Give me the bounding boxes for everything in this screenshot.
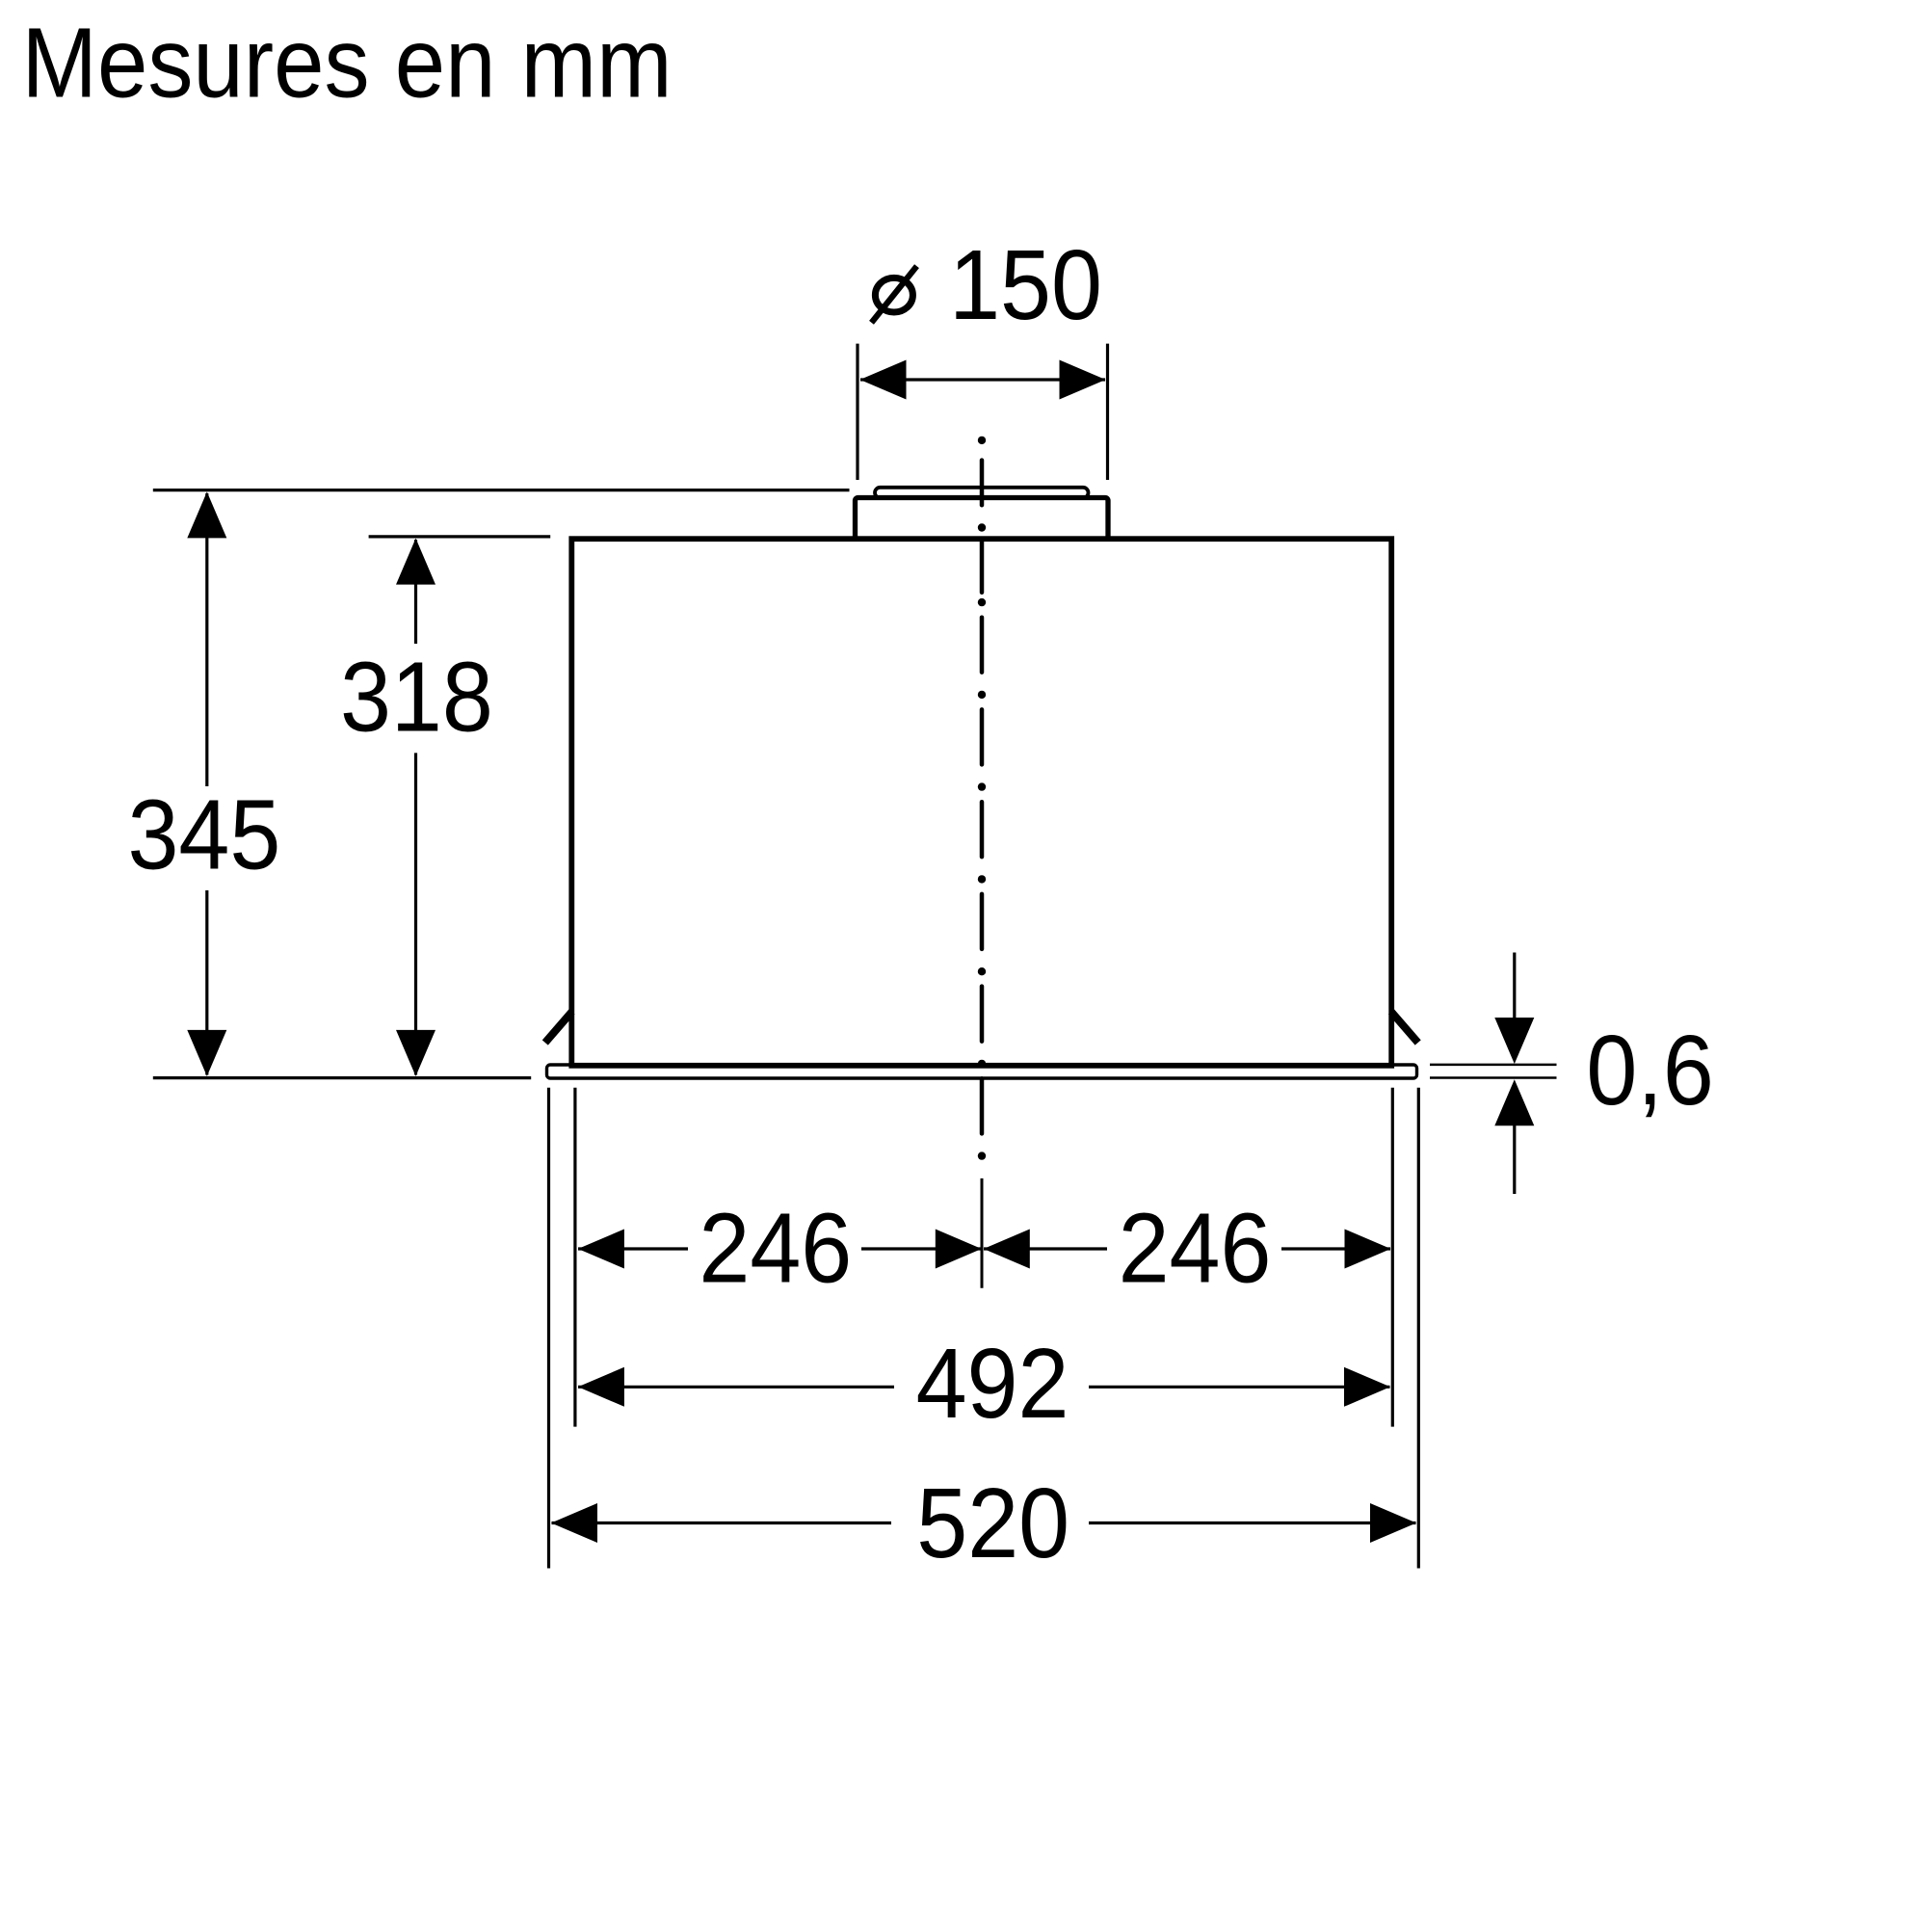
svg-text:0,6: 0,6 xyxy=(1586,1015,1713,1126)
svg-text:150: 150 xyxy=(949,229,1102,341)
svg-text:Mesures en mm: Mesures en mm xyxy=(22,6,673,118)
svg-text:520: 520 xyxy=(916,1468,1069,1579)
svg-text:345: 345 xyxy=(127,780,280,891)
svg-text:318: 318 xyxy=(340,642,493,754)
svg-text:492: 492 xyxy=(916,1328,1069,1440)
svg-text:246: 246 xyxy=(1119,1193,1272,1305)
svg-text:246: 246 xyxy=(699,1193,852,1305)
